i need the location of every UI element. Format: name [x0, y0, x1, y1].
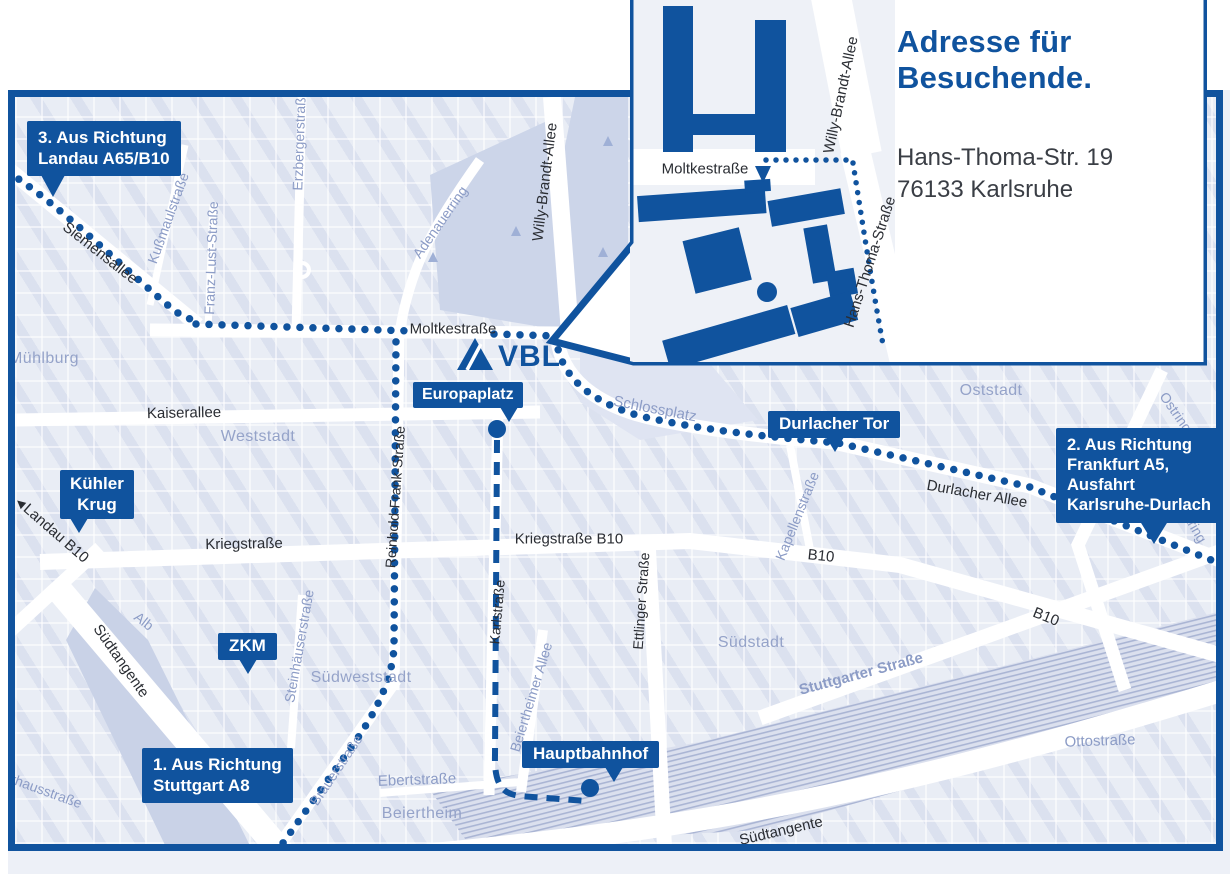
address-line-street: Hans-Thoma-Str. 19 — [897, 142, 1113, 174]
inset-graphic — [0, 0, 1230, 874]
address-line-city: 76133 Karlsruhe — [897, 174, 1113, 206]
address-inset: Moltkestraße Willy-Brandt-Allee Hans-Tho… — [0, 0, 1230, 874]
inset-address: Hans-Thoma-Str. 19 76133 Karlsruhe — [897, 142, 1113, 207]
inset-title: Adresse für Besuchende. — [897, 24, 1209, 96]
inset-street-label-moltkestrasse: Moltkestraße — [662, 161, 749, 178]
